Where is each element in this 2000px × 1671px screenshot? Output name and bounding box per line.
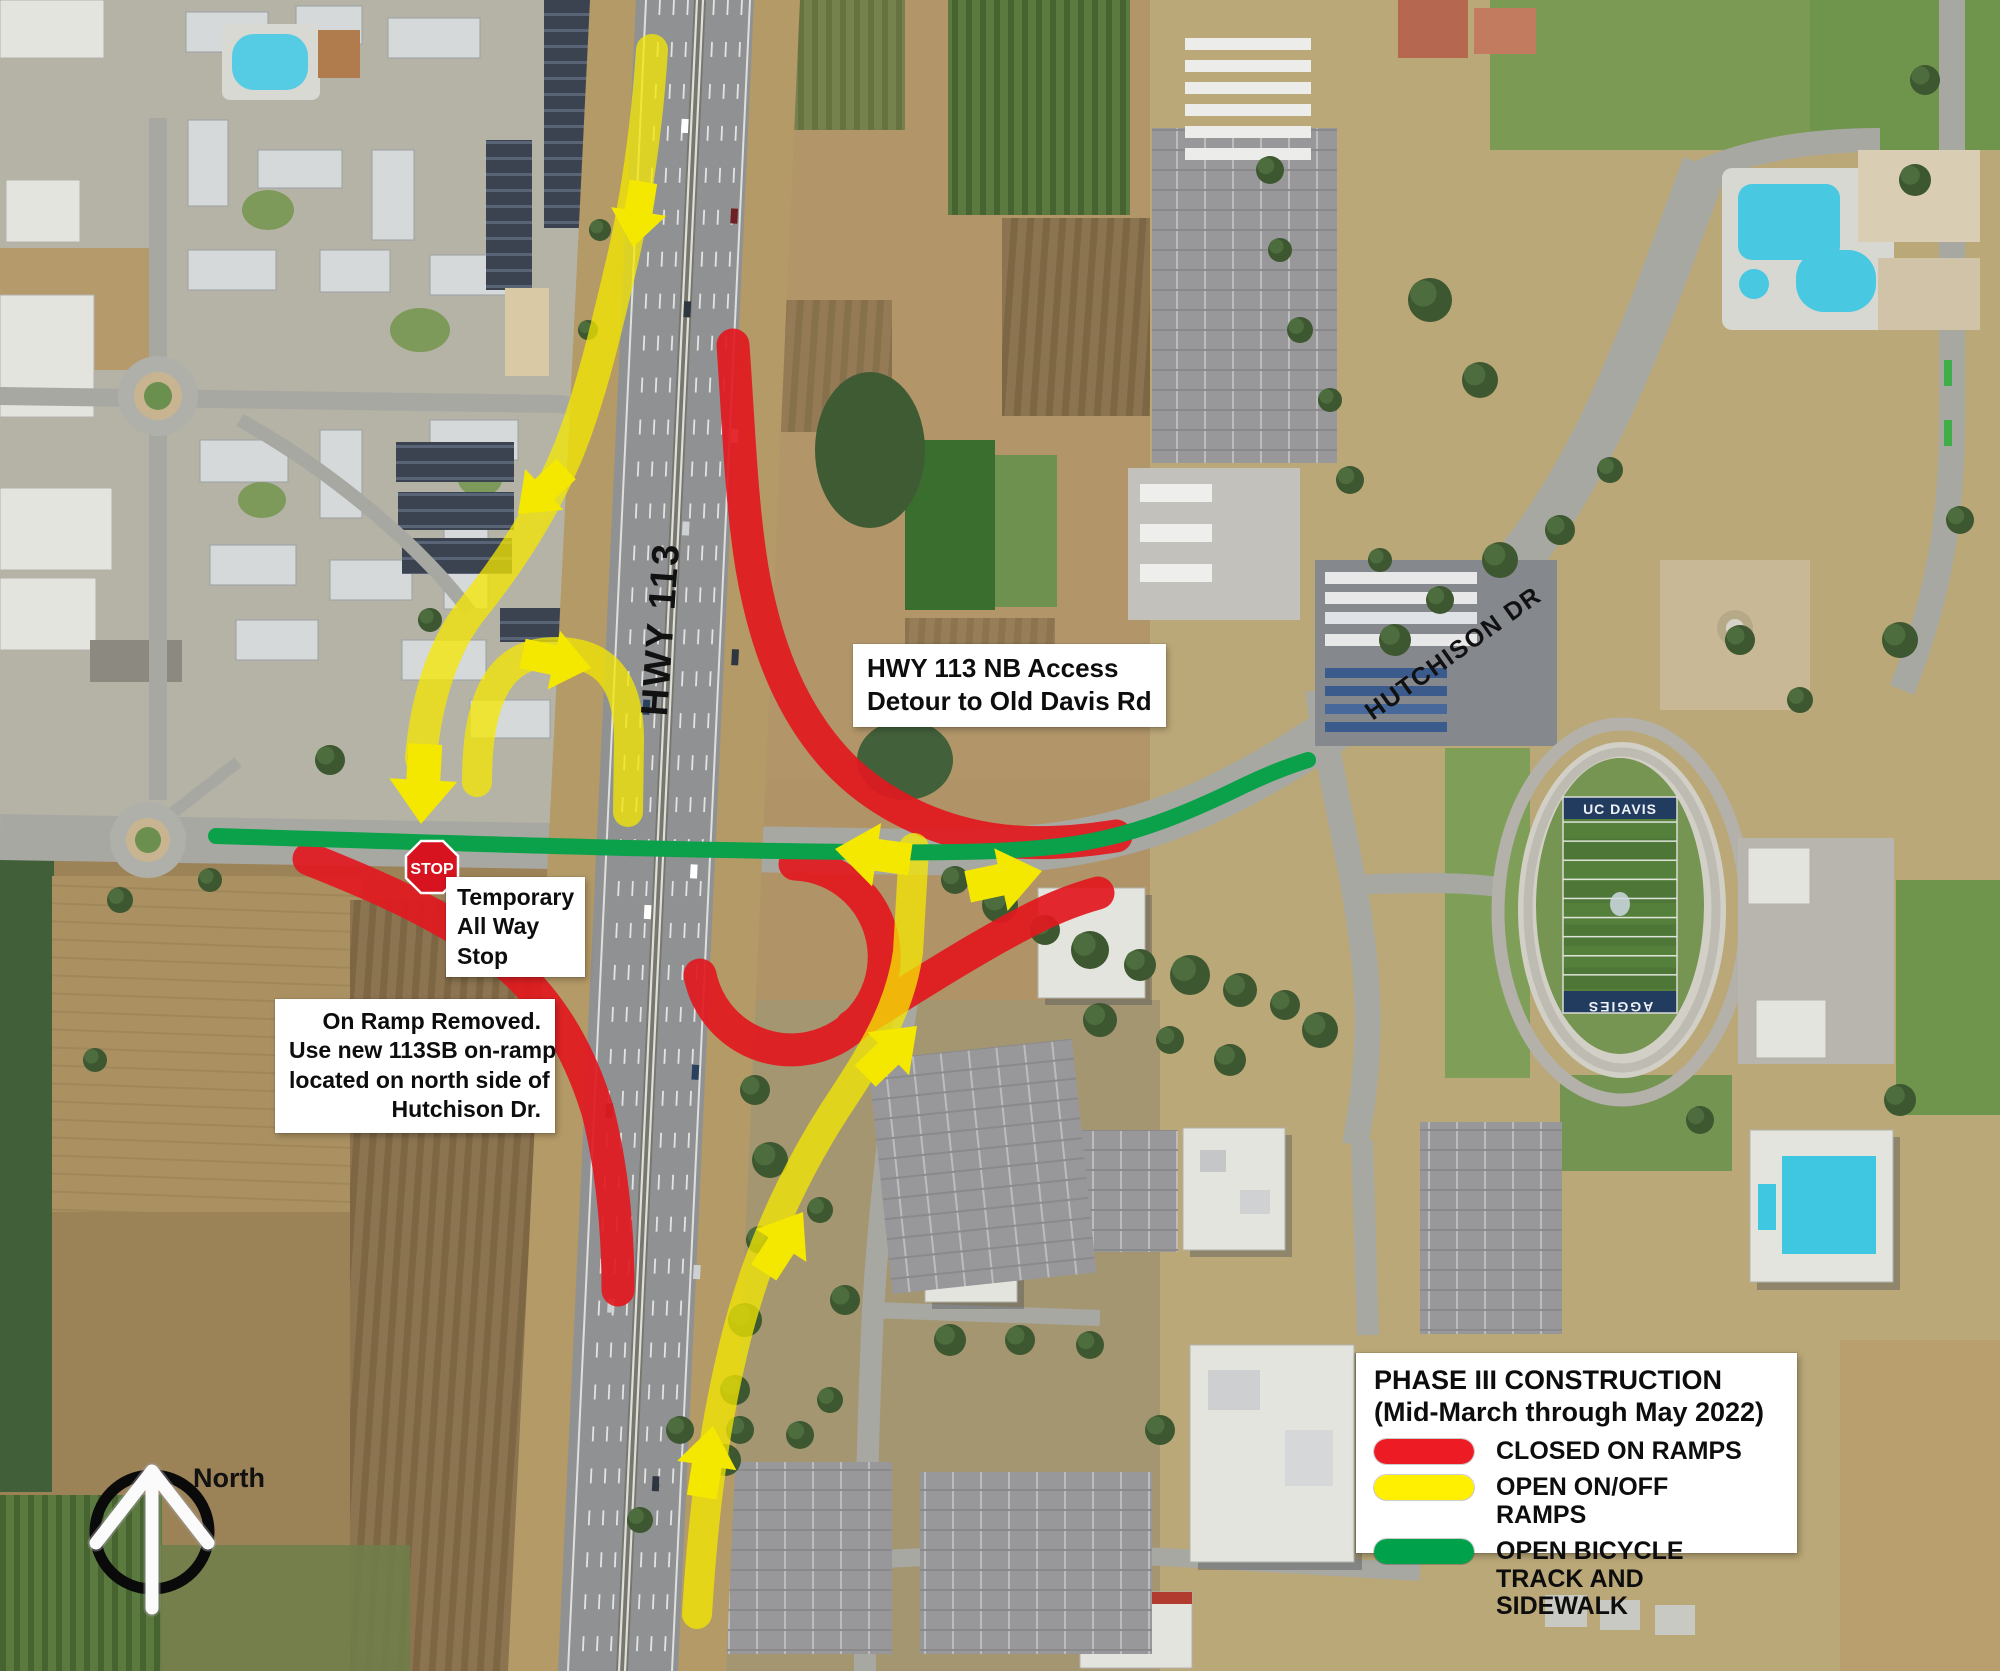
roundabout-north <box>118 356 198 436</box>
legend-swatch-closed-ramps <box>1374 1439 1474 1464</box>
construction-detour-map: UC DAVIS AGGIES <box>0 0 2000 1671</box>
note-line: Detour to Old Davis Rd <box>867 685 1152 718</box>
legend-title-line1: PHASE III CONSTRUCTION <box>1374 1365 1797 1397</box>
note-line: Use new 113SB on-ramp <box>289 1036 541 1065</box>
note-line: Stop <box>457 942 574 971</box>
detour-note: HWY 113 NB Access Detour to Old Davis Rd <box>853 644 1166 727</box>
temporary-stop-note: Temporary All Way Stop <box>446 877 585 977</box>
legend-title-line2: (Mid-March through May 2022) <box>1374 1397 1797 1429</box>
stop-sign-text: STOP <box>410 861 454 878</box>
apartment-pool <box>232 34 308 90</box>
note-line: HWY 113 NB Access <box>867 652 1152 685</box>
legend-label: OPEN ON/OFF RAMPS <box>1496 1474 1756 1529</box>
legend-row-open: OPEN ON/OFF RAMPS <box>1374 1474 1797 1529</box>
legend: PHASE III CONSTRUCTION (Mid-March throug… <box>1356 1353 1797 1553</box>
legend-swatch-open-ramps <box>1374 1475 1474 1500</box>
legend-swatch-bike-track <box>1374 1539 1474 1564</box>
stadium-endzone-text-top: UC DAVIS <box>1583 801 1657 817</box>
legend-row-bike: OPEN BICYCLE TRACK AND SIDEWALK <box>1374 1538 1797 1621</box>
legend-label: CLOSED ON RAMPS <box>1496 1438 1756 1466</box>
aquatics-center <box>1750 1130 1900 1290</box>
note-line: Hutchison Dr. <box>289 1095 541 1124</box>
stadium: UC DAVIS AGGIES <box>1498 724 1746 1100</box>
stadium-endzone-text-bottom: AGGIES <box>1587 999 1653 1015</box>
legend-row-closed: CLOSED ON RAMPS <box>1374 1438 1797 1466</box>
legend-label: OPEN BICYCLE TRACK AND SIDEWALK <box>1496 1538 1756 1621</box>
note-line: On Ramp Removed. <box>289 1007 541 1036</box>
note-line: Temporary <box>457 883 574 912</box>
onramp-removed-note: On Ramp Removed. Use new 113SB on-ramp l… <box>275 999 555 1133</box>
note-line: All Way <box>457 912 574 941</box>
north-label: North <box>193 1463 265 1493</box>
note-line: located on north side of <box>289 1066 541 1095</box>
